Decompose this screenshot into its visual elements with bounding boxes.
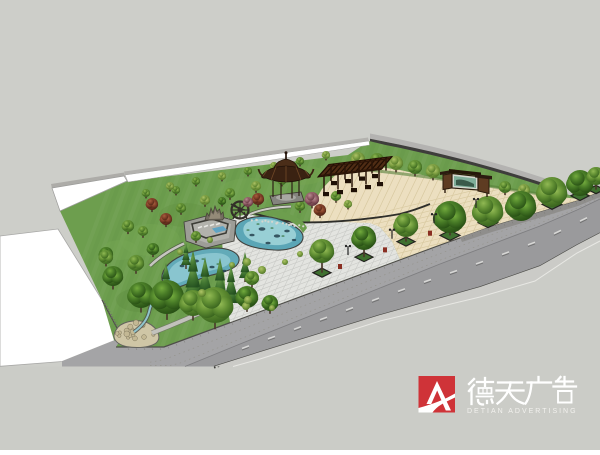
svg-text:DETIAN ADVERTISING: DETIAN ADVERTISING [467,408,578,415]
